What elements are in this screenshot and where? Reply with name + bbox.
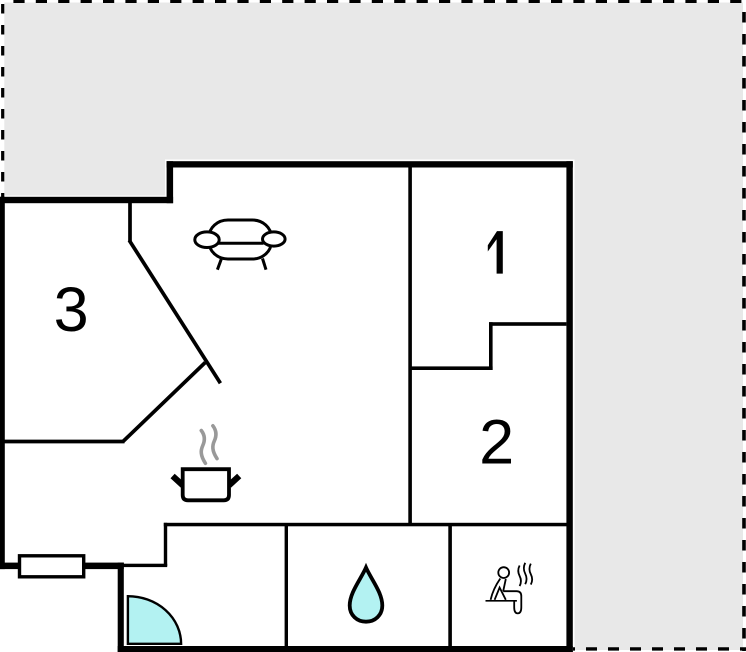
svg-text:3: 3 [54, 275, 89, 345]
svg-text:2: 2 [479, 407, 514, 477]
